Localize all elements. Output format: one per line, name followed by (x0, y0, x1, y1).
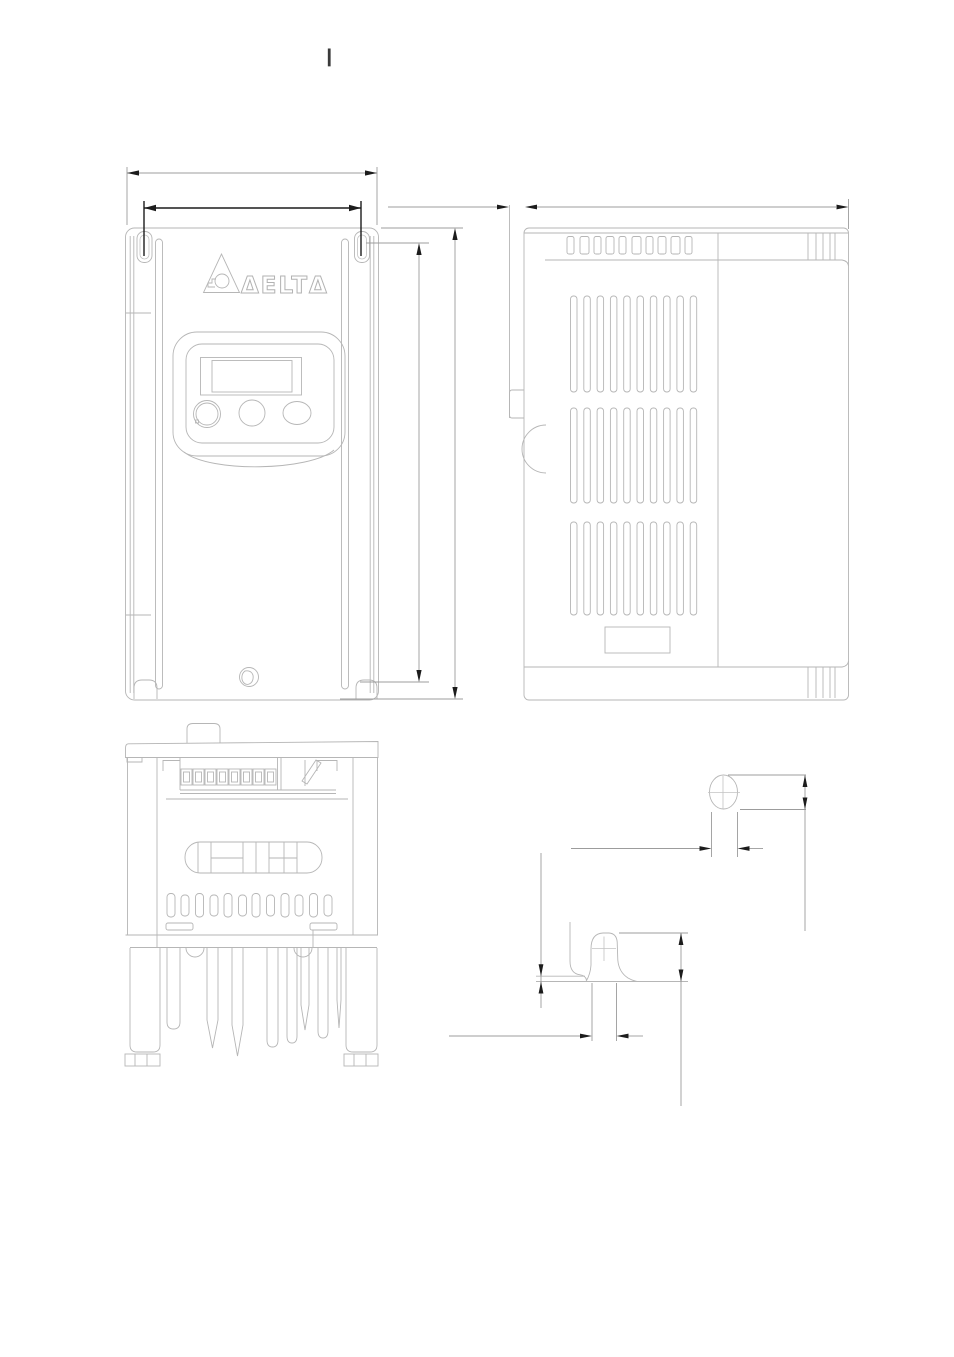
side-vent-group-3 (571, 522, 697, 615)
side-top-vent-row (567, 237, 692, 255)
terminal-block-row (181, 769, 276, 785)
top-tab (187, 724, 220, 744)
dimension-arrow (700, 846, 712, 851)
delta-logo: ΔELTΔ (204, 254, 329, 299)
vent-slot (637, 522, 644, 615)
dimension-arrow (539, 964, 544, 976)
vent-slot (584, 408, 591, 503)
front-ridge-slot (342, 239, 349, 689)
vent-slot (597, 296, 604, 392)
vent-slot (677, 522, 684, 615)
side-body-outline (524, 228, 849, 700)
terminal-screw (268, 772, 274, 782)
dimension-arrow (497, 205, 509, 210)
vent-slot (677, 296, 684, 392)
dimension-arrow (803, 798, 808, 810)
mounting-hole-detail (571, 775, 807, 931)
vent-slot (637, 408, 644, 503)
heatsink-fin (167, 948, 180, 1029)
vent-slot (324, 895, 332, 916)
terminal (253, 769, 264, 785)
vent-slot (650, 408, 657, 503)
dimension-arrow (452, 228, 457, 240)
vent-slot (181, 895, 189, 916)
vent-slot (295, 895, 303, 916)
side-vent-group-2 (571, 408, 697, 503)
dimension-arrow (127, 170, 139, 175)
side-view-dimensions (388, 199, 849, 229)
nameplate-label (605, 627, 670, 653)
side-vent-group-1 (571, 296, 697, 392)
dimension-drawing: ΔELTΔ (0, 0, 954, 1357)
vent-slot (584, 296, 591, 392)
vent-slot (610, 296, 617, 392)
vent-slot (571, 408, 578, 503)
vent-slot (597, 408, 604, 503)
heatsink-foot-right (344, 1054, 378, 1066)
bottom-screw-hole-inner (242, 671, 253, 685)
front-bezel-band (126, 742, 379, 758)
dimension-arrow (617, 1034, 629, 1039)
vent-slot (310, 894, 318, 918)
vent-slot (610, 522, 617, 615)
vent-slot (584, 522, 591, 615)
dimension-arrow (679, 933, 684, 945)
front-foot-left (134, 680, 157, 699)
vent-slot (624, 408, 631, 503)
vent-slot (637, 296, 644, 392)
vent-slot (239, 895, 247, 916)
dimension-arrow (144, 205, 156, 211)
heatsink-fin-pointed (207, 948, 218, 1048)
dimension-arrow (539, 982, 544, 994)
vent-slot (210, 895, 218, 916)
keyhole-bump (586, 933, 637, 982)
vent-slot (624, 522, 631, 615)
bottom-view (125, 724, 378, 1067)
vent-slot (619, 237, 626, 255)
front-view-dimensions (127, 167, 463, 699)
heatsink-wall-left (130, 948, 160, 1052)
vent-slot (571, 522, 578, 615)
vent-slot (252, 894, 260, 918)
keypad-outer-bezel (173, 332, 345, 456)
heatsink-fin (287, 948, 297, 1043)
vent-slot (664, 408, 671, 503)
vent-slot (571, 296, 578, 392)
dimension-arrow (349, 205, 361, 211)
cover-outline (185, 842, 322, 873)
vent-slot (632, 237, 641, 255)
terminal (205, 769, 216, 785)
terminal-screw (208, 772, 214, 782)
terminal (217, 769, 228, 785)
delta-logo-text: ΔELTΔ (241, 273, 329, 299)
heatsink-foot-left (125, 1054, 160, 1066)
keypad-button-middle[interactable] (239, 400, 265, 426)
vent-slot (610, 408, 617, 503)
terminal-screw (256, 772, 262, 782)
vent-slot (685, 237, 692, 255)
heatsink-fin-pointed (232, 948, 243, 1056)
terminal-screw (196, 772, 202, 782)
front-view: ΔELTΔ (126, 228, 379, 700)
vent-slot (658, 237, 666, 255)
vent-slot (690, 408, 697, 503)
bottom-view-side-edges (128, 758, 378, 936)
terminal (229, 769, 240, 785)
side-top-band-line (545, 260, 849, 266)
terminal-screw (244, 772, 250, 782)
display-frame (201, 358, 302, 396)
heatsink-wall-right (346, 948, 377, 1052)
dimension-arrow (679, 970, 684, 982)
front-ridge-slot (156, 239, 163, 689)
potentiometer-knob-inner[interactable] (196, 403, 218, 425)
display-screen (212, 361, 292, 393)
dimension-arrow (837, 205, 849, 210)
terminal (193, 769, 204, 785)
dimension-arrow (738, 846, 750, 851)
terminal-screw (220, 772, 226, 782)
vent-slot (677, 408, 684, 503)
keypad-button-right[interactable] (283, 402, 311, 425)
vent-slot (167, 894, 175, 918)
vent-slot (224, 894, 232, 918)
inner-step-left (163, 761, 180, 772)
keypad-bezel-sweep (184, 450, 334, 467)
dimension-arrow (452, 687, 457, 699)
base-slot-left (166, 923, 193, 930)
extension-line (592, 983, 617, 1041)
dimension-arrow (416, 243, 421, 255)
heatsink (125, 948, 378, 1067)
dimension-arrow (580, 1034, 592, 1039)
heatsink-fin (318, 948, 328, 1038)
side-bottom-band-line (524, 661, 849, 667)
heatsink-foot-right-lines (354, 1054, 366, 1066)
heatsink-fin-pointed (301, 948, 309, 1030)
terminal (181, 769, 192, 785)
keypad-panel (173, 332, 345, 467)
terminal-cover-block (185, 842, 322, 873)
extension-line (712, 812, 738, 857)
cover-dividers (198, 842, 297, 873)
heatsink-fin-pointed (337, 948, 341, 1028)
terminal-screw (184, 772, 190, 782)
vent-slot (267, 895, 275, 916)
side-housing-arc (522, 425, 546, 473)
vent-slot (606, 237, 614, 255)
keyhole-left-hook (570, 922, 587, 980)
terminal (265, 769, 276, 785)
keypad-side-bump (510, 390, 525, 418)
keypad-inner-bezel (186, 344, 334, 443)
vent-slot (646, 237, 653, 255)
vent-slot (580, 237, 589, 255)
base-slot-right (310, 923, 337, 930)
terminal (241, 769, 252, 785)
vent-slot (196, 894, 204, 918)
dimension-arrow (803, 775, 808, 787)
terminal-screw (232, 772, 238, 782)
heatsink-foot-left-lines (135, 1054, 147, 1066)
vent-slot (671, 237, 680, 255)
din-plate-edges-top (808, 233, 835, 260)
heatsink-notch (186, 948, 204, 957)
inner-shelf-lines (166, 790, 348, 799)
vent-slot (567, 237, 574, 255)
center-mark-cross (592, 937, 616, 962)
vent-slot (664, 522, 671, 615)
vent-slot (664, 296, 671, 392)
mounting-hole-circle (710, 775, 738, 809)
dimension-arrow (365, 170, 377, 175)
bottom-vent-row (167, 894, 332, 918)
delta-swirl-icon (215, 274, 229, 288)
mounting-hole-top-right (355, 232, 370, 263)
vent-slot (650, 522, 657, 615)
side-view (510, 205, 849, 700)
vent-slot (624, 296, 631, 392)
potentiometer-knob[interactable] (194, 401, 221, 428)
vent-slot (597, 522, 604, 615)
keyhole-slot-detail (449, 853, 688, 1106)
bezel-notch (127, 758, 142, 763)
dimension-arrow (525, 205, 537, 210)
dimension-arrow (416, 670, 421, 682)
din-plate-edges-bottom (808, 667, 835, 698)
heatsink-fin (267, 948, 278, 1047)
manual-page: | ΔELT (0, 0, 954, 1357)
vent-slot (690, 522, 697, 615)
vent-slot (690, 296, 697, 392)
vent-slot (594, 237, 601, 255)
base-edge-lines (157, 930, 313, 947)
vent-slot (281, 894, 289, 918)
mounting-hole-top-right-inner (358, 235, 367, 259)
vent-slot (650, 296, 657, 392)
